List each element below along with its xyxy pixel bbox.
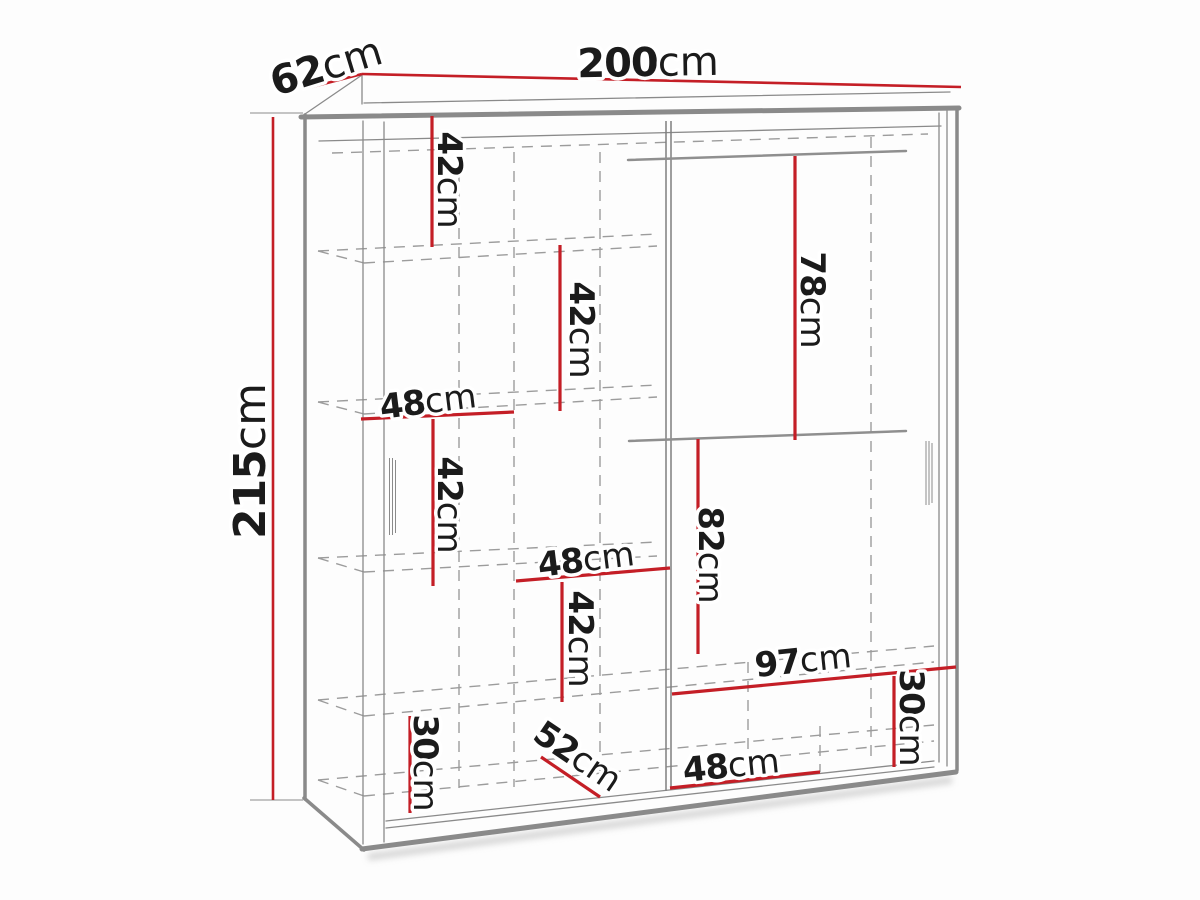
left-door-handle-icon (390, 458, 396, 535)
wardrobe-outline (250, 74, 959, 850)
dim-label-shelf-48-mid: 48cm (535, 534, 636, 586)
dimension-lines (273, 74, 961, 813)
dim-label-bottom-30-left: 30cm (405, 714, 445, 811)
wardrobe-dimension-diagram: 62cm 200cm 215cm 42cm 42cm 48cm 42cm 78c… (0, 0, 1200, 900)
dim-label-depth: 62cm (265, 28, 388, 106)
dim-label-shelf-48-left: 48cm (377, 376, 478, 428)
dim-label-shelf-42-upper-mid: 42cm (561, 281, 601, 378)
dim-label-width: 200cm (577, 39, 719, 87)
dim-label-shelf-42-top-left: 42cm (429, 131, 469, 228)
dim-label-shelf-42-mid-left: 42cm (429, 456, 469, 553)
dim-label-bottom-48-right: 48cm (681, 741, 782, 791)
dimension-labels: 62cm 200cm 215cm 42cm 42cm 48cm 42cm 78c… (225, 28, 931, 811)
hidden-structure-lines (318, 134, 934, 796)
dim-label-shelf-42-lower-mid: 42cm (560, 590, 600, 687)
dim-label-height: 215cm (225, 383, 276, 539)
diagram-canvas: 62cm 200cm 215cm 42cm 42cm 48cm 42cm 78c… (0, 0, 1200, 900)
dim-label-hanging-78: 78cm (792, 251, 832, 348)
dim-label-hanging-82: 82cm (690, 506, 730, 603)
dim-label-bottom-30-right: 30cm (891, 669, 931, 766)
right-door-handle-icon (926, 441, 932, 505)
